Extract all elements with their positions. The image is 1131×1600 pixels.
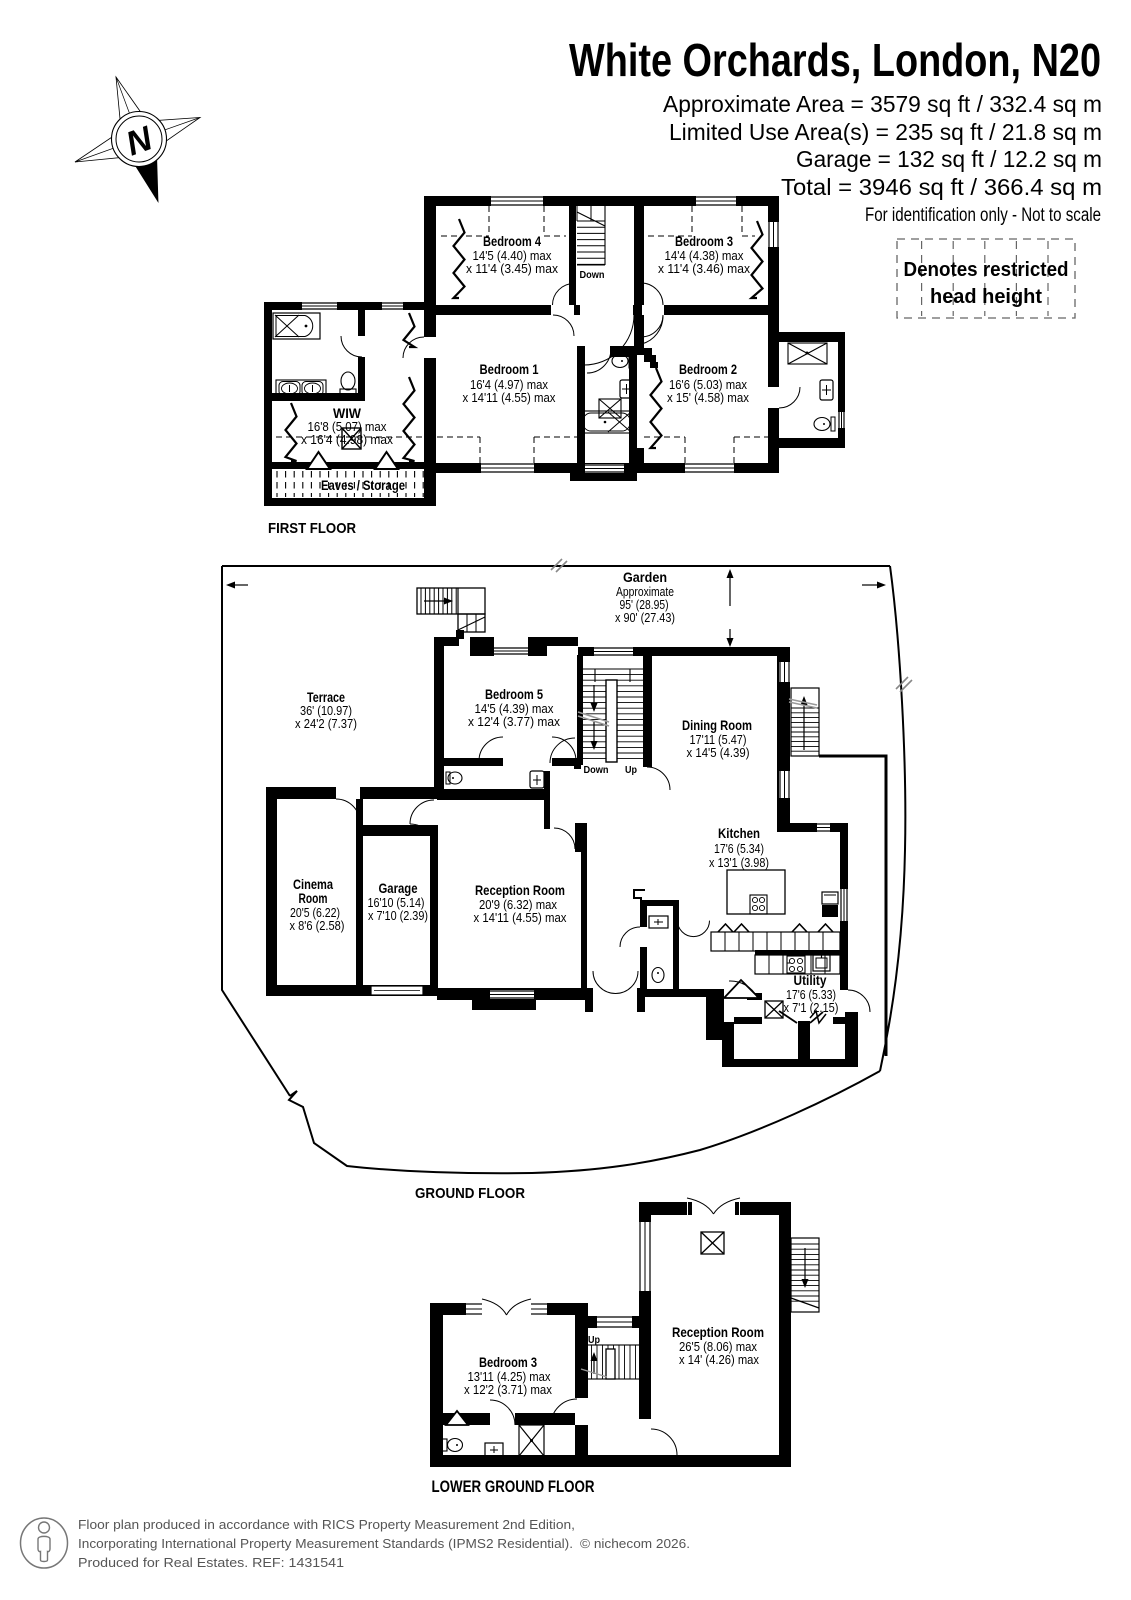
svg-text:x 12'4 (3.77) max: x 12'4 (3.77) max bbox=[468, 714, 560, 729]
svg-text:x 13'1 (3.98): x 13'1 (3.98) bbox=[709, 855, 769, 870]
svg-text:x 12'2 (3.71) max: x 12'2 (3.71) max bbox=[464, 1382, 552, 1397]
svg-text:Up: Up bbox=[625, 764, 637, 776]
svg-text:LOWER GROUND FLOOR: LOWER GROUND FLOOR bbox=[432, 1478, 595, 1496]
svg-text:Total = 3946 sq ft / 366.4 sq: Total = 3946 sq ft / 366.4 sq m bbox=[781, 174, 1102, 200]
svg-text:Garage: Garage bbox=[379, 881, 418, 896]
svg-text:x 7'10 (2.39): x 7'10 (2.39) bbox=[368, 908, 428, 923]
svg-text:Bedroom 4: Bedroom 4 bbox=[483, 233, 541, 249]
svg-text:Bedroom 5: Bedroom 5 bbox=[485, 686, 543, 702]
svg-text:x 14'11 (4.55) max: x 14'11 (4.55) max bbox=[463, 390, 556, 405]
svg-text:x 7'1 (2.15): x 7'1 (2.15) bbox=[784, 1000, 839, 1015]
svg-text:Room: Room bbox=[299, 891, 328, 906]
svg-text:Down: Down bbox=[580, 269, 605, 281]
svg-text:head height: head height bbox=[930, 286, 1042, 308]
svg-text:x 14'11 (4.55) max: x 14'11 (4.55) max bbox=[474, 910, 567, 925]
svg-text:Limited Use Area(s) = 235 sq f: Limited Use Area(s) = 235 sq ft / 21.8 s… bbox=[669, 119, 1102, 145]
svg-text:x 11'4 (3.46) max: x 11'4 (3.46) max bbox=[658, 261, 750, 276]
svg-text:Cinema: Cinema bbox=[293, 877, 333, 892]
svg-text:FIRST FLOOR: FIRST FLOOR bbox=[268, 520, 356, 537]
svg-text:Kitchen: Kitchen bbox=[718, 825, 760, 841]
svg-text:x 8'6 (2.58): x 8'6 (2.58) bbox=[290, 918, 345, 933]
svg-text:x 14' (4.26) max: x 14' (4.26) max bbox=[679, 1352, 759, 1367]
svg-text:Bedroom 1: Bedroom 1 bbox=[480, 361, 539, 377]
svg-text:Bedroom 2: Bedroom 2 bbox=[679, 361, 737, 377]
svg-text:x 15' (4.58) max: x 15' (4.58) max bbox=[667, 390, 749, 405]
svg-text:Reception Room: Reception Room bbox=[672, 1324, 764, 1340]
svg-text:Garage = 132 sq ft / 12.2 sq m: Garage = 132 sq ft / 12.2 sq m bbox=[796, 146, 1102, 172]
svg-text:© nichecom 2026.: © nichecom 2026. bbox=[580, 1536, 690, 1551]
svg-text:x 14'5 (4.39): x 14'5 (4.39) bbox=[687, 745, 750, 760]
svg-text:Down: Down bbox=[584, 764, 609, 776]
svg-text:White Orchards, London, N20: White Orchards, London, N20 bbox=[569, 34, 1101, 86]
svg-text:Floor plan produced in accorda: Floor plan produced in accordance with R… bbox=[78, 1517, 575, 1532]
svg-text:Produced for Real Estates. R: Produced for Real Estates. REF: 1431541 bbox=[78, 1555, 344, 1570]
svg-text:Incorporating International Pr: Incorporating International Property Mea… bbox=[78, 1536, 573, 1551]
svg-text:Up: Up bbox=[588, 1334, 600, 1346]
svg-text:Bedroom 3: Bedroom 3 bbox=[479, 1354, 537, 1370]
svg-text:17'6 (5.34): 17'6 (5.34) bbox=[714, 841, 764, 856]
svg-text:For identification only - Not: For identification only - Not to scale bbox=[865, 205, 1101, 226]
svg-text:Eaves / Storage: Eaves / Storage bbox=[321, 478, 405, 493]
svg-text:Denotes restricted: Denotes restricted bbox=[904, 259, 1069, 281]
svg-text:x 24'2 (7.37): x 24'2 (7.37) bbox=[295, 716, 357, 731]
svg-text:x 90' (27.43): x 90' (27.43) bbox=[615, 610, 675, 625]
svg-text:Approximate Area = 3579 sq ft: Approximate Area = 3579 sq ft / 332.4 sq… bbox=[663, 91, 1102, 117]
svg-text:GROUND FLOOR: GROUND FLOOR bbox=[415, 1185, 525, 1202]
svg-text:Utility: Utility bbox=[794, 973, 827, 988]
svg-text:Garden: Garden bbox=[623, 570, 667, 585]
svg-text:x 11'4 (3.45) max: x 11'4 (3.45) max bbox=[466, 261, 558, 276]
svg-text:Bedroom 3: Bedroom 3 bbox=[675, 233, 733, 249]
svg-text:Dining Room: Dining Room bbox=[682, 717, 752, 733]
svg-text:Reception Room: Reception Room bbox=[475, 882, 565, 898]
